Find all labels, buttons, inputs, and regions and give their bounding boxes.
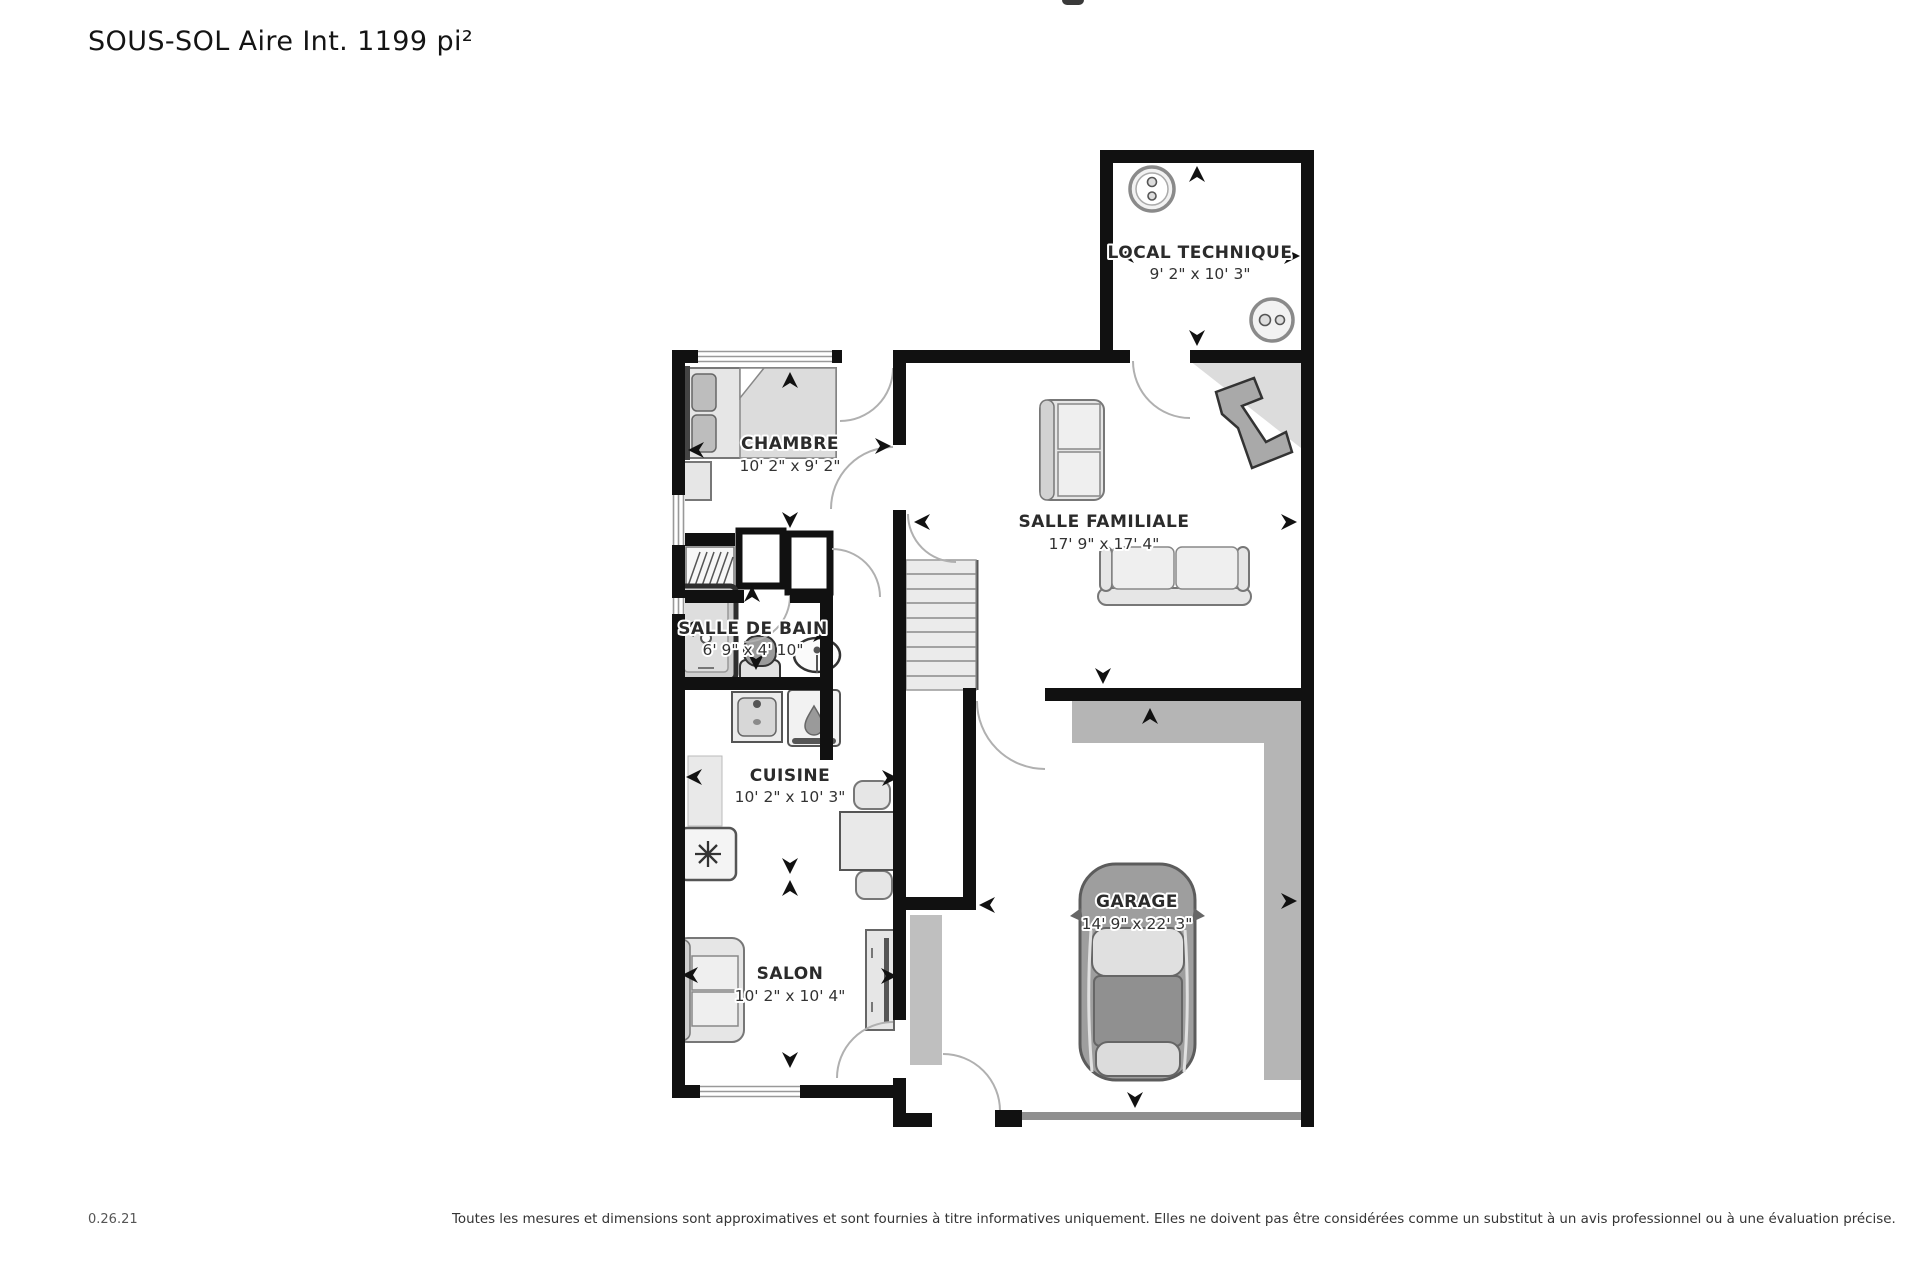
room-dims-chambre: 10' 2" x 9' 2": [740, 457, 841, 475]
car-mirror: [1192, 908, 1205, 922]
room-label-cuisine: CUISINE: [750, 766, 831, 786]
room-dims-local-technique: 9' 2" x 10' 3": [1150, 265, 1251, 283]
faucet-icon: [753, 700, 761, 708]
window: [672, 598, 685, 614]
vestibule-stair-strip: [910, 915, 942, 1065]
bedroom-furniture: [679, 366, 836, 500]
cropped-logo-mark: [1062, 0, 1084, 5]
pillow: [692, 374, 716, 411]
room-label-salon: SALON: [757, 964, 824, 984]
car-rear-window: [1096, 1042, 1180, 1076]
floorplan-drawing: LOCAL TECHNIQUE 9' 2" x 10' 3" CHAMBRE 1…: [0, 0, 1920, 1280]
room-dims-garage: 14' 9" x 22' 3": [1082, 915, 1193, 933]
sofa-base: [1098, 588, 1251, 605]
closet-box: [739, 531, 783, 586]
kitchen-counter: [688, 756, 722, 826]
garage-door: [1022, 1112, 1301, 1120]
window: [700, 1085, 800, 1098]
room-label-salle-de-bain: SALLE DE BAIN: [678, 619, 827, 639]
chair: [854, 781, 890, 809]
room-dims-cuisine: 10' 2" x 10' 3": [735, 788, 846, 806]
sofa-cushion: [1176, 547, 1238, 589]
room-label-salle-familiale: SALLE FAMILIALE: [1019, 512, 1190, 532]
staircase: [906, 560, 978, 690]
page-title: SOUS-SOL Aire Int. 1199 pi²: [88, 26, 473, 57]
floorplan-page: SOUS-SOL Aire Int. 1199 pi²: [0, 0, 1920, 1280]
car-windshield: [1092, 928, 1184, 976]
faucet-icon: [814, 647, 821, 654]
room-dims-salle-de-bain: 6' 9" x 4' 10": [703, 641, 804, 659]
car-roof: [1094, 976, 1182, 1046]
sofa-cushion: [1112, 547, 1174, 589]
family-room-furniture: [1040, 400, 1251, 605]
window: [698, 350, 832, 363]
tv-unit: [866, 930, 894, 1030]
closet-hatch: [686, 547, 734, 589]
disclaimer-text: Toutes les mesures et dimensions sont ap…: [452, 1212, 1896, 1227]
room-label-garage: GARAGE: [1096, 892, 1178, 912]
room-dims-salon: 10' 2" x 10' 4": [735, 987, 846, 1005]
version-number: 0.26.21: [88, 1212, 138, 1227]
garage-concrete-band-right: [1264, 743, 1301, 1080]
kitchen-table: [840, 812, 902, 870]
closet-box: [788, 534, 830, 592]
room-dims-salle-familiale: 17' 9" x 17' 4": [1049, 535, 1160, 553]
window: [672, 495, 685, 545]
salon-furniture: [676, 930, 894, 1042]
chair: [856, 871, 892, 899]
garage-concrete-band-top: [1072, 701, 1301, 743]
room-label-chambre: CHAMBRE: [741, 434, 839, 454]
room-label-local-technique: LOCAL TECHNIQUE: [1108, 243, 1293, 263]
hvac-unit-icon: [1251, 299, 1293, 341]
